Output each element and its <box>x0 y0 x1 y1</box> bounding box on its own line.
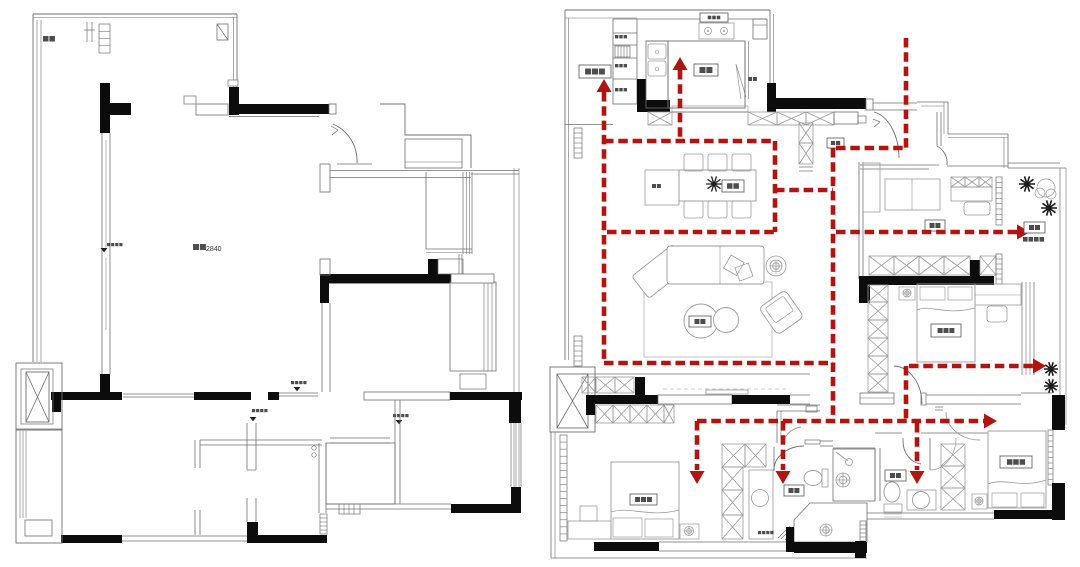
svg-text:2840: 2840 <box>206 246 222 253</box>
